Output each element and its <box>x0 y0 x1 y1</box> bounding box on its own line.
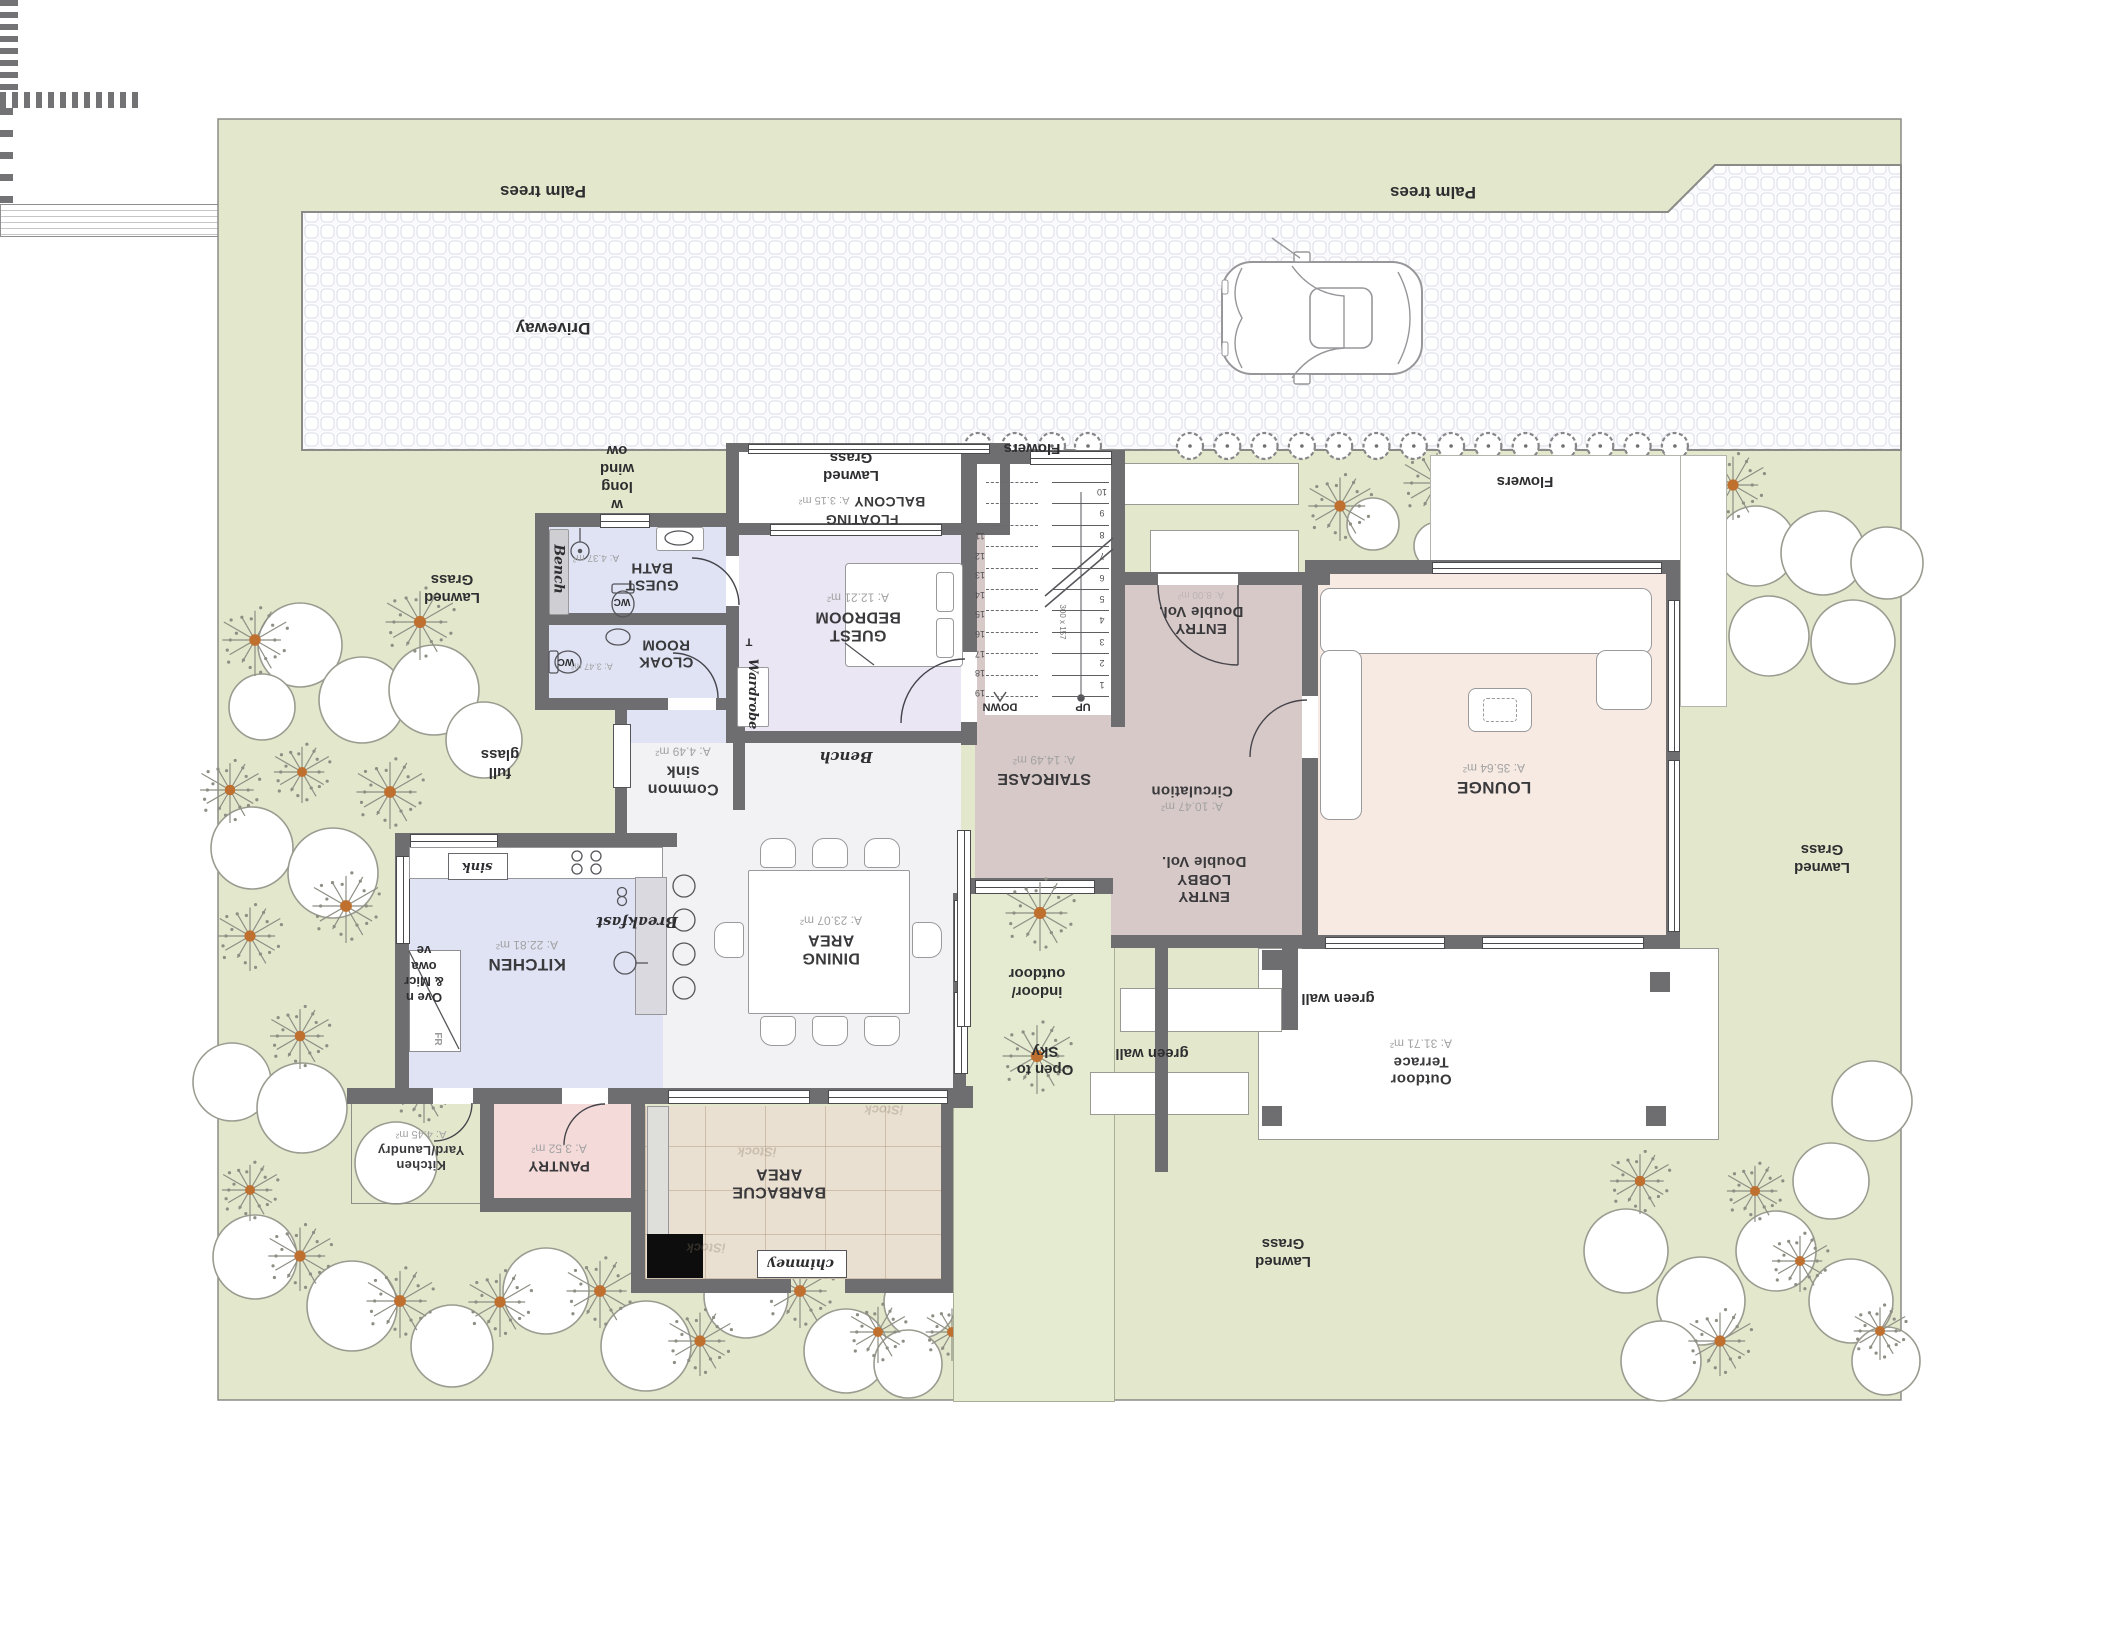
stair-tread <box>986 568 1038 569</box>
stair-tread <box>1052 696 1109 697</box>
stair-number: 19 <box>975 688 985 698</box>
watermark: iStock <box>737 1145 776 1160</box>
stair-tread <box>986 482 1038 483</box>
stair-number: 1 <box>1099 680 1104 690</box>
stair-tread <box>1052 546 1109 547</box>
long-window-label: w long wind ow <box>595 441 639 513</box>
wardrobe-label: Wardrobe <box>744 659 760 730</box>
stair-tread <box>1052 589 1109 590</box>
room-label-pantry: PANTRY A: 3.52 m² <box>514 1141 604 1174</box>
room-label-balcony: FLOATING BALCONY A: 3.15 m² <box>798 492 926 528</box>
stair-tread <box>986 653 1038 654</box>
stair-up-label: UP <box>1075 699 1090 712</box>
stair-number: 2 <box>1099 658 1104 668</box>
hob-icon <box>572 851 582 861</box>
room-label-entry: ENTRY Double Vol. A: 8.00 m² <box>1151 589 1251 637</box>
stair-tread <box>986 610 1038 611</box>
stair-number: 10 <box>1097 487 1107 497</box>
open-to-sky-label: Open to Sky <box>1012 1042 1078 1078</box>
stair-number: 15 <box>975 609 985 619</box>
stair-number: 8 <box>1099 530 1104 540</box>
stair-tread <box>1052 653 1109 654</box>
lawned-grass-label: Lawned Grass <box>1251 1234 1315 1270</box>
stair-number: 3 <box>1099 637 1104 647</box>
stair-tread <box>1052 568 1109 569</box>
stair-number: 17 <box>975 649 985 659</box>
stair-number: 16 <box>975 629 985 639</box>
stair-number: 18 <box>975 668 985 678</box>
stair-number: 11 <box>975 531 984 541</box>
palm-trees-label: Palm trees <box>500 181 586 201</box>
room-label-common-sink: Common sink A: 4.49 m² <box>644 745 722 798</box>
stair-tread <box>986 503 1038 504</box>
stair-tread <box>1052 610 1109 611</box>
room-label-kitchen-yard: Kitchen Yard/Laundry A: 4.45 m² <box>365 1128 477 1172</box>
driveway-label: Driveway <box>516 318 591 338</box>
room-label-guest-bath: GUEST BATH <box>620 559 684 594</box>
sink-label: sink <box>462 858 493 874</box>
stair-number: 12 <box>975 551 985 561</box>
stair-tread <box>1052 525 1109 526</box>
stair-tread <box>986 525 1038 526</box>
green-wall-label: green wall <box>1115 1044 1188 1062</box>
stair-number: 14 <box>975 590 985 600</box>
stair-tread <box>986 696 1038 697</box>
chimney-label: chimney <box>768 1255 834 1272</box>
stair-tread <box>986 546 1038 547</box>
room-label-bedroom: GUEST BEDROOM A: 12.21 m² <box>811 591 906 644</box>
door-arc <box>692 558 739 605</box>
area-cloak: A: 3.47 m² <box>571 661 613 672</box>
stair-tread <box>1052 482 1109 483</box>
oven-microwave-label: Ove n & Micr owa ve <box>404 943 444 1005</box>
stair-number: 13 <box>975 570 985 580</box>
door-arc <box>901 659 965 723</box>
hob-icon <box>618 888 627 897</box>
stair-tread <box>1052 632 1109 633</box>
palm-trees-label: Palm trees <box>1390 182 1476 202</box>
kitchen-basin-icon <box>614 952 636 974</box>
room-label-staircase: STAIRCASE A: 14.49 m² <box>979 753 1109 787</box>
bench-label: Bench <box>550 544 567 594</box>
stair-tread <box>1052 503 1109 504</box>
room-label-cloak: CLOAK ROOM <box>635 636 697 671</box>
lawned-grass-label: Lawned Grass <box>421 570 483 606</box>
room-label-entry-lobby: ENTRY LOBBY Double Vol. <box>1158 853 1250 905</box>
basin-icon <box>606 629 630 645</box>
flowers-label: Flowers <box>1497 472 1554 490</box>
lawned-grass-label: Lawned Grass <box>820 448 882 484</box>
stair-down-label: DOWN <box>983 699 1018 712</box>
area-guest-bath: A: 4.37 m² <box>573 551 619 563</box>
stair-tread <box>1052 675 1109 676</box>
stool-icon <box>673 875 695 897</box>
room-label-lounge: LOUNGE A: 35.64 m² <box>1434 761 1554 797</box>
bed-fold <box>845 643 874 665</box>
fridge-label: FR <box>431 1032 443 1045</box>
watermark: iStock <box>686 1241 725 1256</box>
room-label-kitchen: KITCHEN A: 22.81 m² <box>467 938 587 974</box>
lawned-grass-label: Lawned Grass <box>1790 840 1854 876</box>
wardrobe-t-label: T <box>746 634 753 647</box>
stair-tread <box>986 632 1038 633</box>
stair-number: 6 <box>1099 573 1104 583</box>
flowers-label: Flowers <box>1004 439 1061 457</box>
door-arc <box>564 1104 605 1145</box>
room-label-barbacue: BARBACUE AREA <box>724 1164 834 1201</box>
door-arc <box>1250 700 1307 757</box>
room-label-terrace: Outdoor Terrace A: 31.71 m² <box>1380 1037 1462 1088</box>
full-glass-label: full glass <box>479 745 521 781</box>
wc-label: WC <box>614 595 631 607</box>
stair-tread <box>986 589 1038 590</box>
stair-number: 9 <box>1099 508 1104 518</box>
watermark: iStock <box>864 1103 903 1118</box>
basin-icon <box>665 531 693 545</box>
green-wall-label: green wall <box>1301 989 1374 1007</box>
room-label-circulation: A: 10.47 m² Circulation <box>1132 782 1252 815</box>
stair-number: 7 <box>1099 551 1104 561</box>
floor-plan-canvas: Palm trees Palm trees Driveway Flowers F… <box>0 0 2102 1642</box>
stair-number: 4 <box>1099 615 1104 625</box>
bench-label: Bench <box>819 748 872 766</box>
stair-tread <box>986 675 1038 676</box>
wc-label: WC <box>558 655 575 667</box>
indoor-outdoor-label: indoor/ outdoor <box>1001 964 1073 1000</box>
breakfast-label: Breakfast <box>596 913 678 931</box>
stair-number: 5 <box>1099 594 1104 604</box>
plan-annotations <box>0 0 2102 1642</box>
tree-icon <box>1006 877 1076 951</box>
room-label-dining: DINING AREA A: 23.07 m² <box>796 914 866 967</box>
